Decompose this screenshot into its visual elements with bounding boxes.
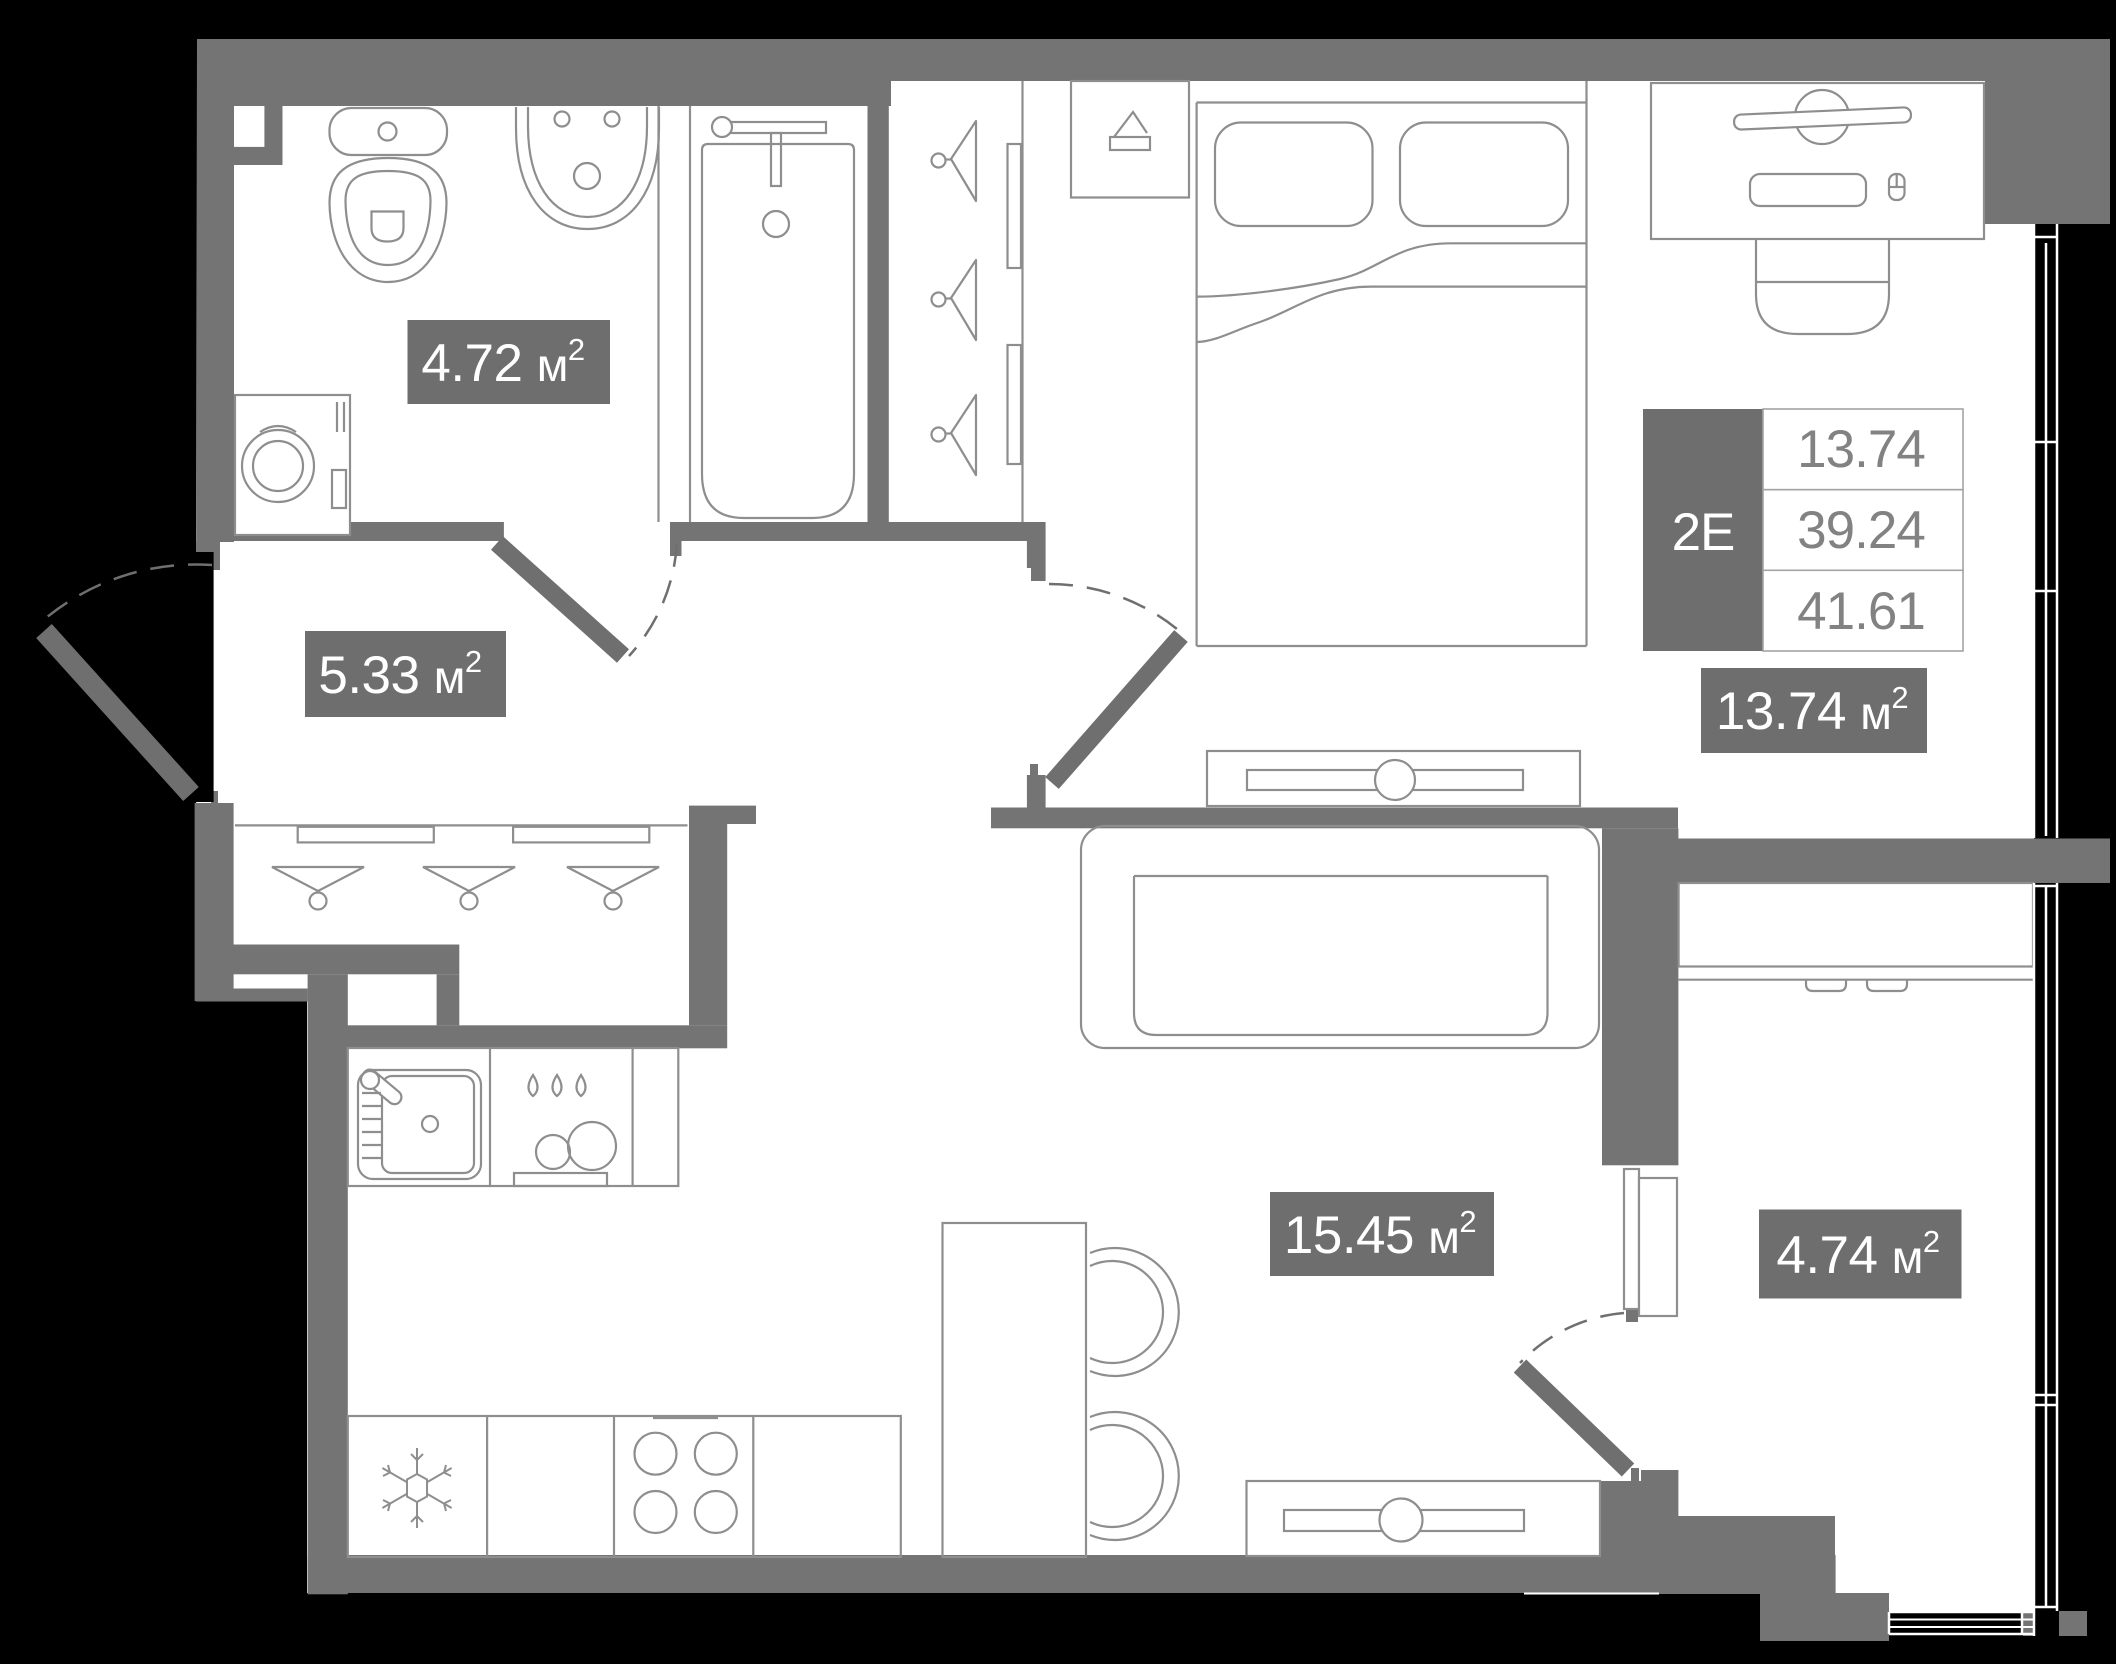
svg-text:13.74: 13.74 <box>1797 420 1925 479</box>
svg-text:13.74 м2: 13.74 м2 <box>1716 680 1908 741</box>
svg-text:41.61: 41.61 <box>1797 582 1925 641</box>
svg-text:4.74 м2: 4.74 м2 <box>1776 1224 1939 1285</box>
svg-text:39.24: 39.24 <box>1797 501 1925 560</box>
svg-text:15.45 м2: 15.45 м2 <box>1284 1204 1476 1265</box>
svg-text:4.72 м2: 4.72 м2 <box>421 332 584 393</box>
svg-text:5.33 м2: 5.33 м2 <box>318 644 481 705</box>
svg-text:2Е: 2Е <box>1672 503 1735 562</box>
